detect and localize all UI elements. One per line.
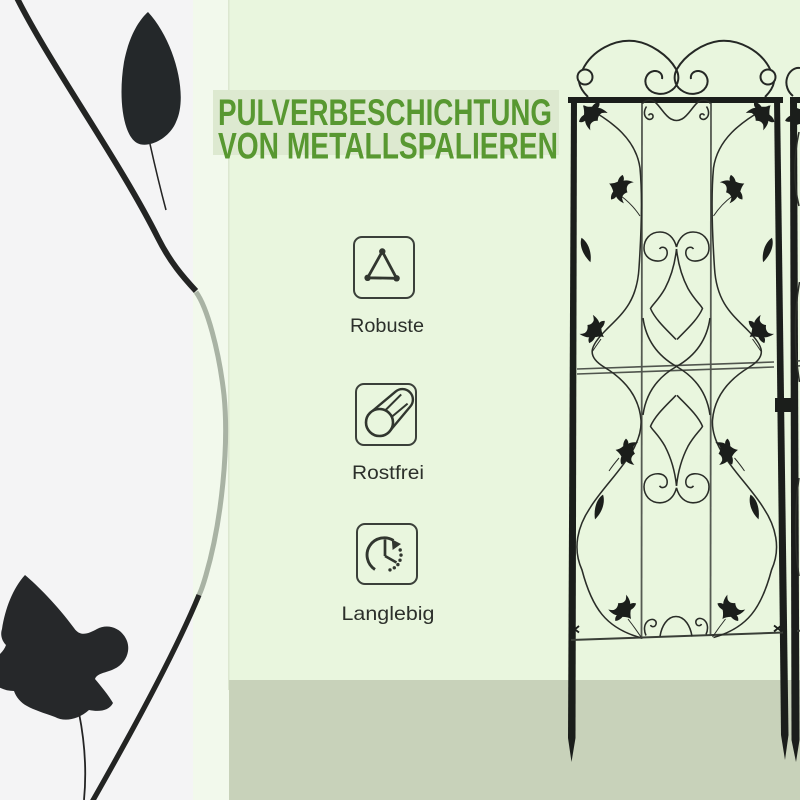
svg-text:VON METALLSPALIEREN: VON METALLSPALIEREN xyxy=(218,126,558,167)
svg-text:Langlebig: Langlebig xyxy=(342,603,435,625)
svg-text:Rostfrei: Rostfrei xyxy=(352,462,424,484)
svg-text:Robuste: Robuste xyxy=(350,315,424,337)
